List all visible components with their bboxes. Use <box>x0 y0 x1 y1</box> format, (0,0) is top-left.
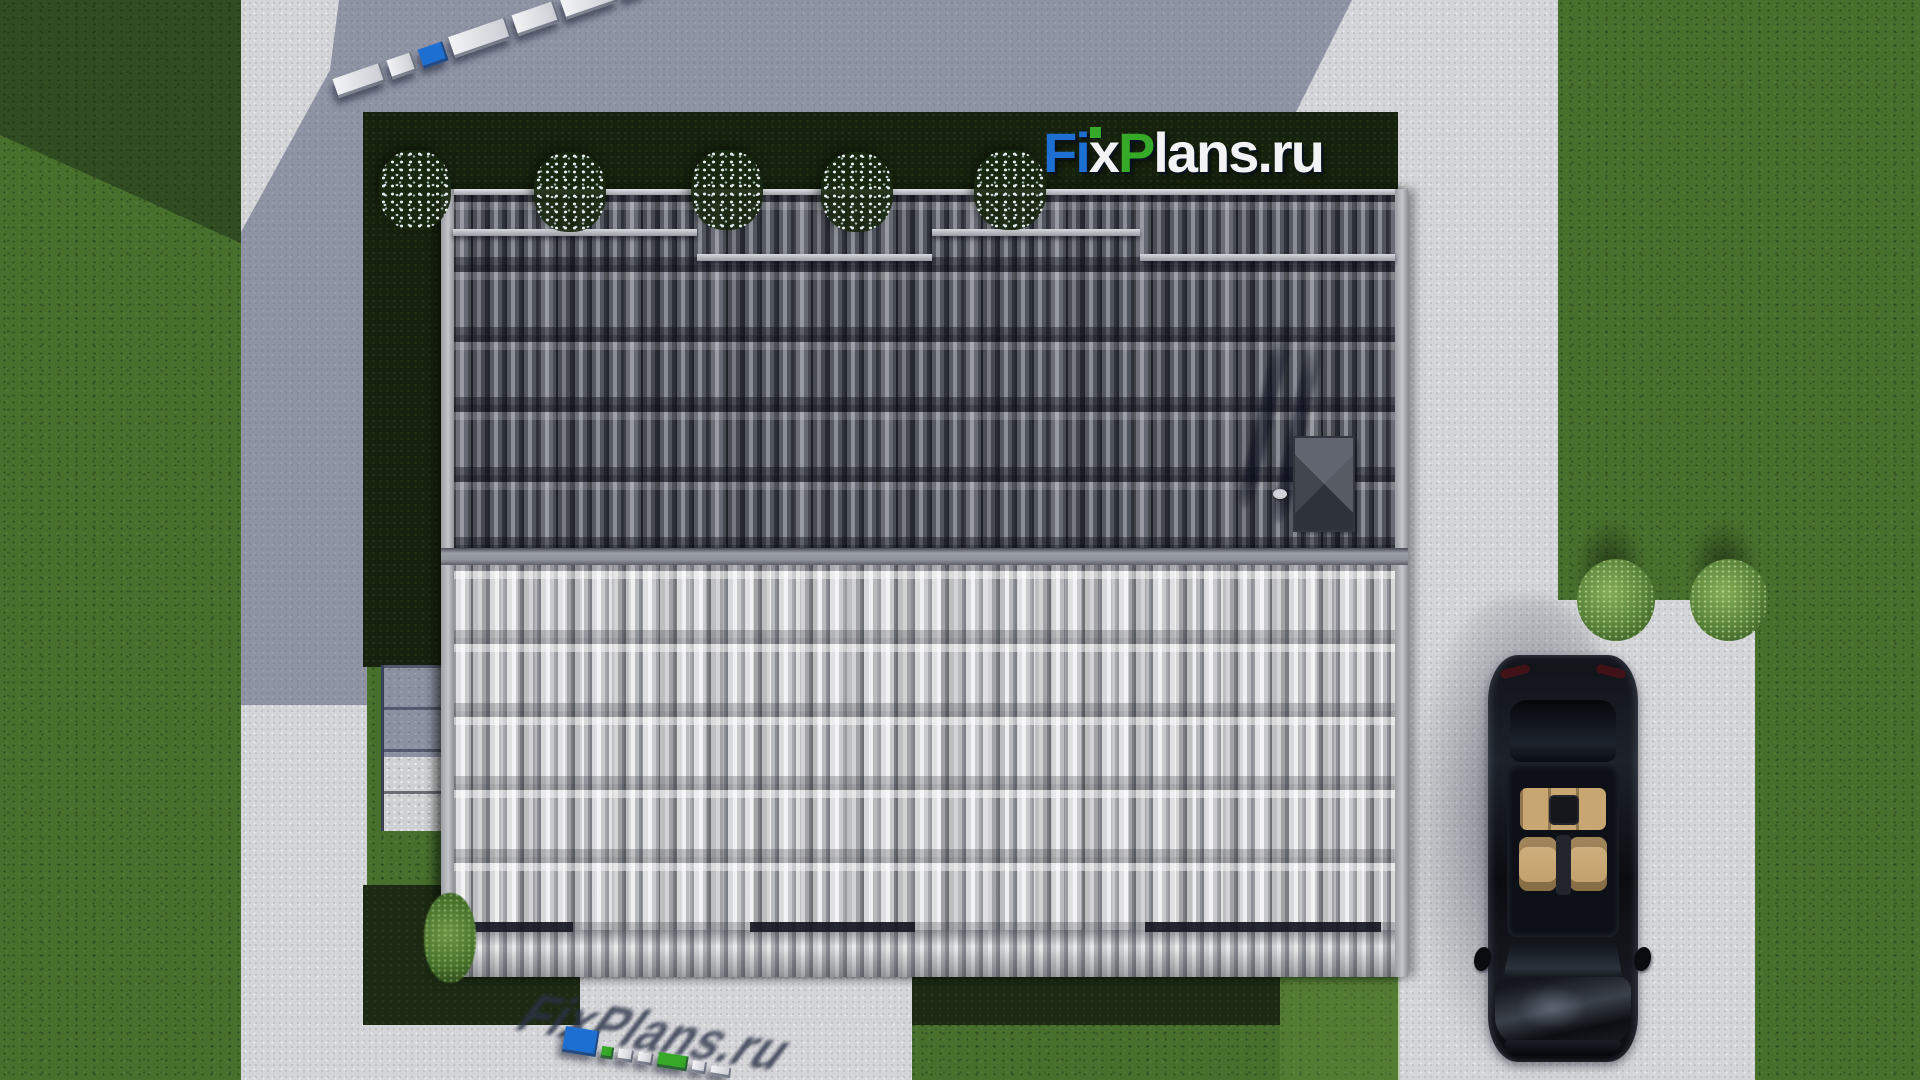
grass-sunlit-corner <box>1280 965 1400 1080</box>
car-front-bumper <box>1505 1040 1621 1056</box>
flower-bush <box>534 152 606 232</box>
watermark-block-green <box>600 1046 614 1060</box>
car-console-screen <box>1551 797 1577 823</box>
logo-segment: P <box>1118 121 1153 184</box>
car-taillight-left <box>1499 664 1530 680</box>
watermark-block-white <box>691 1060 707 1074</box>
car-rear-window <box>1510 700 1616 762</box>
flower-bush <box>974 150 1046 230</box>
chimney <box>1295 438 1353 530</box>
flower-bush <box>821 152 893 232</box>
black-sedan-car <box>1488 655 1638 1062</box>
round-bush <box>1690 559 1768 641</box>
roof-lower-slope-light-tiles <box>454 565 1395 930</box>
house-roof <box>441 189 1408 977</box>
flower-bush <box>691 150 763 230</box>
logo-segment: i <box>1075 121 1089 184</box>
roof-gutter-bar <box>697 254 932 261</box>
car-windshield <box>1503 943 1623 979</box>
car-panoramic-roof <box>1507 765 1619 937</box>
roof-vent-pipe-1 <box>1273 489 1287 499</box>
roof-gutter-bar <box>932 229 1140 236</box>
corner-bush <box>424 893 476 983</box>
yard-dark-bottom-right <box>912 977 1280 1025</box>
roof-fascia-left <box>441 189 454 977</box>
logo-segment: .ru <box>1257 121 1323 184</box>
car-center-console <box>1556 835 1571 895</box>
car-taillight-right <box>1595 664 1626 680</box>
flower-bush <box>379 150 451 230</box>
roof-eave-dark-segment <box>1145 922 1381 932</box>
roof-fascia-right <box>1395 189 1408 977</box>
fixplans-logo-i-dot <box>1090 127 1101 138</box>
side-path-right <box>1398 0 1558 612</box>
roof-gutter-bar <box>1140 254 1395 261</box>
logo-segment: F <box>1043 121 1075 184</box>
roof-eave-dark-segment <box>750 922 915 932</box>
round-bush <box>1577 559 1655 641</box>
logo-segment: lans <box>1153 121 1257 184</box>
watermark-block-white <box>637 1052 654 1066</box>
car-hood-reflection <box>1516 985 1588 1029</box>
aerial-house-render: FixPlans.ru FixPlans.ru <box>0 0 1920 1080</box>
roof-eave-dark-segment <box>463 922 573 932</box>
car-front-seat-right <box>1569 837 1607 891</box>
fixplans-logo: FixPlans.ru <box>1043 120 1323 185</box>
roof-ridge <box>441 548 1408 565</box>
watermark-block-white <box>617 1049 634 1063</box>
car-front-seat-left <box>1519 837 1557 891</box>
car-mirror-left <box>1474 947 1491 971</box>
watermark-block-blue <box>562 1026 600 1057</box>
roof-bottom-eave-overhang <box>454 930 1395 977</box>
